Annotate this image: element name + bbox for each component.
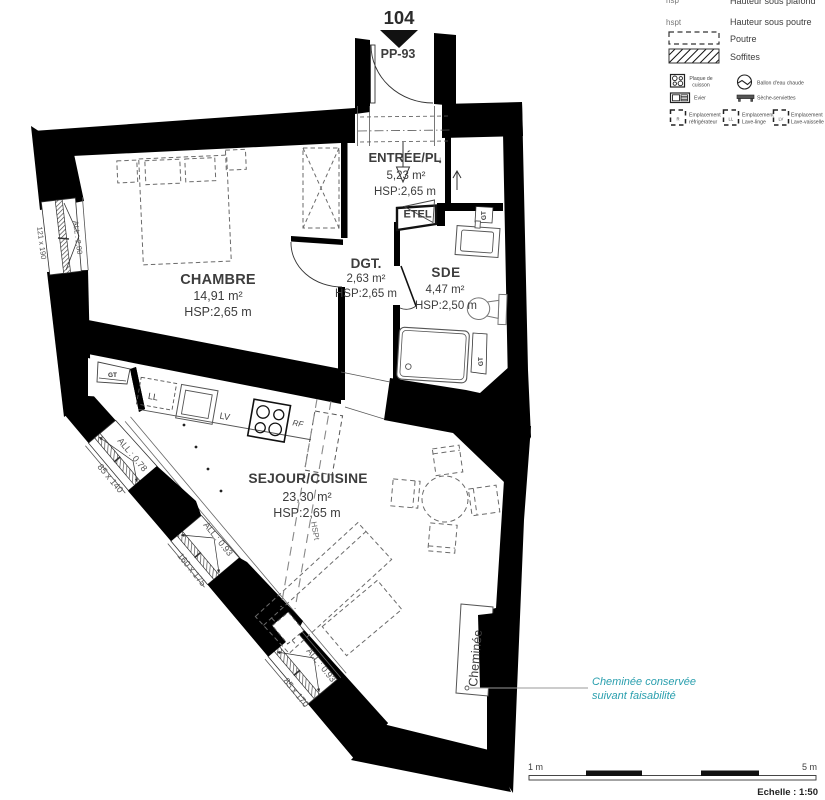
svg-text:Hauteur sous plafond: Hauteur sous plafond — [730, 0, 816, 6]
svg-text:Evier: Evier — [694, 96, 706, 102]
svg-text:CHAMBRE: CHAMBRE — [180, 272, 256, 288]
svg-text:DGT.: DGT. — [351, 256, 382, 271]
svg-text:GT: GT — [478, 357, 485, 366]
svg-text:Plaque de: Plaque de — [689, 76, 712, 82]
svg-text:4,47 m²: 4,47 m² — [426, 284, 465, 296]
svg-text:SDE: SDE — [431, 265, 460, 280]
svg-text:Ballon d'eau chaude: Ballon d'eau chaude — [757, 81, 804, 87]
svg-text:ENTRÉE/PL: ENTRÉE/PL — [369, 150, 442, 165]
svg-text:hsp: hsp — [666, 0, 679, 5]
svg-text:↓: ↓ — [438, 155, 443, 166]
svg-text:HSP:2,65 m: HSP:2,65 m — [184, 305, 251, 319]
svg-text:Emplacement: Emplacement — [742, 113, 774, 119]
svg-text:suivant faisabilité: suivant faisabilité — [592, 690, 676, 702]
svg-text:GT: GT — [481, 211, 488, 220]
svg-text:14,91 m²: 14,91 m² — [193, 289, 242, 303]
svg-text:hspt: hspt — [666, 18, 682, 27]
svg-text:Poutre: Poutre — [730, 34, 757, 44]
svg-text:GT: GT — [108, 372, 117, 379]
svg-text:Lave-vaisselle: Lave-vaisselle — [791, 120, 824, 126]
svg-text:Echelle : 1:50: Echelle : 1:50 — [757, 787, 818, 798]
svg-text:SEJOUR/CUISINE: SEJOUR/CUISINE — [248, 471, 367, 486]
svg-text:Hauteur sous poutre: Hauteur sous poutre — [730, 17, 812, 27]
svg-text:LV: LV — [219, 411, 231, 423]
svg-text:HSP:2,65 m: HSP:2,65 m — [335, 288, 397, 300]
svg-text:Cheminée conservée: Cheminée conservée — [592, 676, 696, 688]
svg-text:Emplacement: Emplacement — [791, 113, 823, 119]
svg-text:5,23 m²: 5,23 m² — [387, 170, 426, 182]
svg-text:LL: LL — [147, 391, 159, 403]
svg-text:23,30 m²: 23,30 m² — [282, 490, 331, 504]
svg-text:Soffites: Soffites — [730, 52, 760, 62]
svg-text:cuisson: cuisson — [692, 83, 710, 89]
svg-text:Lave-linge: Lave-linge — [742, 120, 766, 126]
svg-text:HSP:2,65 m: HSP:2,65 m — [273, 506, 340, 520]
svg-text:Sèche-serviettes: Sèche-serviettes — [757, 96, 796, 102]
svg-text:PP-93: PP-93 — [381, 47, 416, 61]
svg-text:LV: LV — [779, 117, 784, 122]
svg-text:ETEL: ETEL — [403, 209, 431, 221]
svg-text:HSP:2,65 m: HSP:2,65 m — [374, 186, 436, 198]
svg-text:2,63 m²: 2,63 m² — [347, 273, 386, 285]
svg-text:R: R — [677, 117, 680, 122]
svg-text:104: 104 — [384, 7, 416, 28]
svg-text:1 m: 1 m — [528, 762, 543, 772]
svg-text:LL: LL — [729, 117, 734, 122]
svg-text:HSP:2,50 m: HSP:2,50 m — [415, 300, 477, 312]
svg-text:réfrigérateur: réfrigérateur — [689, 120, 718, 126]
svg-text:5 m: 5 m — [802, 762, 817, 772]
svg-text:Emplacement: Emplacement — [689, 113, 721, 119]
